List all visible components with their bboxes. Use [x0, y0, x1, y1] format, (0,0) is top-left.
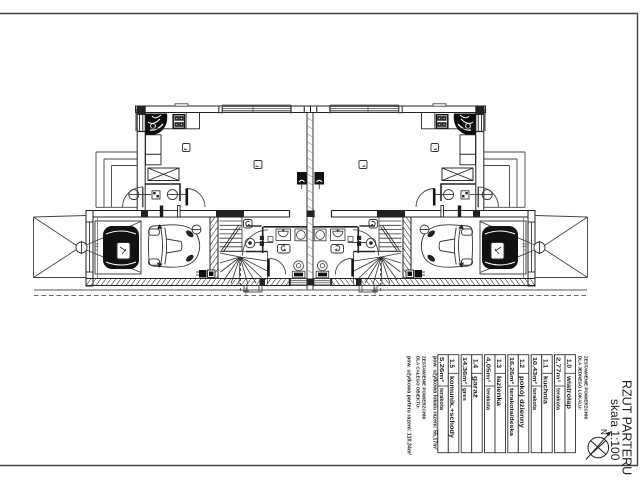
- svg-text:1.1: 1.1: [542, 359, 549, 368]
- svg-text:1.5: 1.5: [448, 359, 455, 368]
- svg-text:4,05m²: 4,05m²: [485, 357, 492, 382]
- svg-text:DLA CAŁEGO OBIEKTU:: DLA CAŁEGO OBIEKTU:: [416, 356, 421, 409]
- svg-text:terakota: terakota: [531, 388, 537, 410]
- svg-text:garaż: garaż: [472, 376, 478, 398]
- svg-text:terakota: terakota: [555, 388, 561, 410]
- svg-text:łazienka: łazienka: [495, 376, 501, 407]
- svg-text:1.2: 1.2: [518, 359, 525, 368]
- svg-text:skala 1:100: skala 1:100: [608, 399, 622, 461]
- svg-text:DLA JEDNEGO LOKALU:: DLA JEDNEGO LOKALU:: [578, 356, 583, 410]
- svg-text:gres: gres: [461, 388, 467, 401]
- svg-text:1.3: 1.3: [495, 359, 502, 368]
- svg-text:16,26m²: 16,26m²: [508, 357, 515, 384]
- svg-text:5,26m²: 5,26m²: [438, 357, 445, 382]
- svg-text:1.0: 1.0: [565, 359, 572, 368]
- svg-text:terakota: terakota: [438, 388, 444, 410]
- svg-text:kuchnia: kuchnia: [542, 376, 548, 405]
- svg-text:terakota/deska: terakota/deska: [508, 388, 514, 436]
- svg-text:wiatrołap: wiatrołap: [565, 375, 571, 410]
- svg-text:pokój dzienny: pokój dzienny: [518, 376, 524, 429]
- svg-text:10,43m²: 10,43m²: [531, 357, 538, 384]
- svg-text:14,36m²: 14,36m²: [461, 357, 468, 384]
- svg-text:ZESTAWIENIE POWIERZCHNI: ZESTAWIENIE POWIERZCHNI: [584, 356, 589, 419]
- svg-text:ZESTAWIENIE POWIERZCHNI: ZESTAWIENIE POWIERZCHNI: [422, 356, 427, 419]
- svg-text:pow. użytkowa lokalu razem: 5: pow. użytkowa lokalu razem: 55,17m²: [432, 356, 438, 450]
- svg-text:1.4: 1.4: [472, 359, 479, 368]
- svg-text:pow. użytkowa parteru razem: 1: pow. użytkowa parteru razem: 110,34m²: [406, 356, 412, 456]
- svg-text:2,77m²: 2,77m²: [555, 357, 562, 382]
- svg-text:komunik.+schody: komunik.+schody: [448, 376, 454, 439]
- svg-text:N: N: [599, 429, 608, 435]
- svg-text:terakota: terakota: [485, 388, 491, 410]
